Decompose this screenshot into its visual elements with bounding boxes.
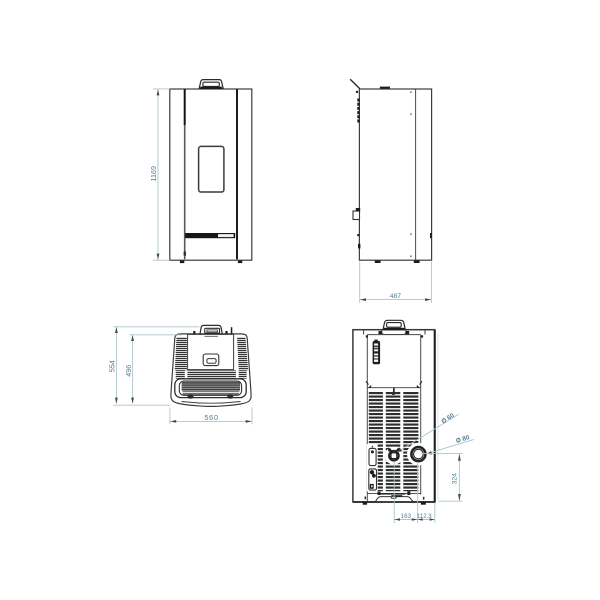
svg-text:324: 324 <box>452 473 459 485</box>
svg-text:1169: 1169 <box>149 166 158 181</box>
svg-text:163: 163 <box>401 513 412 520</box>
svg-text:112.3: 112.3 <box>417 514 432 520</box>
svg-text:554: 554 <box>108 360 117 372</box>
svg-text:487: 487 <box>390 293 402 300</box>
svg-text:496: 496 <box>124 365 133 377</box>
svg-text:560: 560 <box>204 413 218 422</box>
